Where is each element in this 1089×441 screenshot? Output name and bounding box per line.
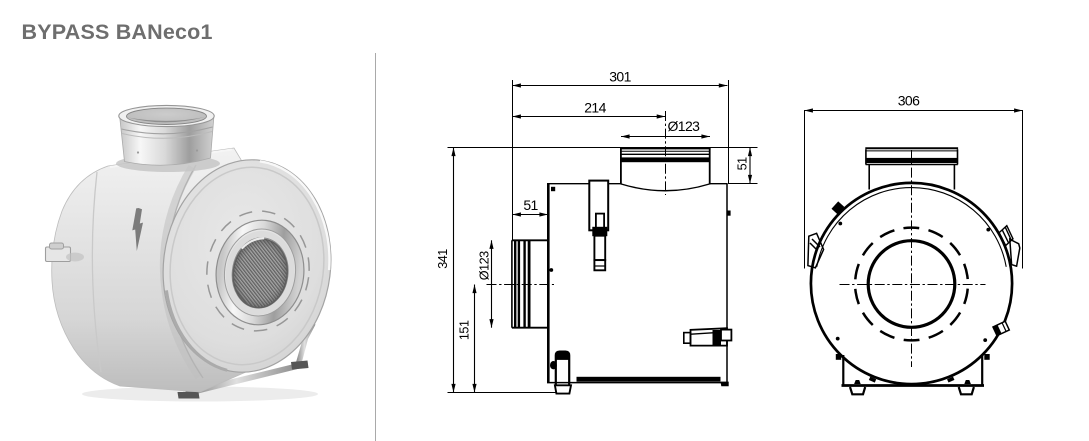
svg-text:306: 306 (898, 93, 920, 109)
svg-text:151: 151 (457, 320, 471, 340)
svg-text:51: 51 (735, 157, 749, 171)
svg-text:Ø123: Ø123 (478, 251, 492, 280)
svg-text:Ø123: Ø123 (668, 118, 701, 134)
svg-text:341: 341 (436, 249, 450, 269)
svg-text:51: 51 (523, 197, 538, 213)
svg-text:301: 301 (609, 68, 631, 84)
svg-text:214: 214 (584, 100, 606, 116)
